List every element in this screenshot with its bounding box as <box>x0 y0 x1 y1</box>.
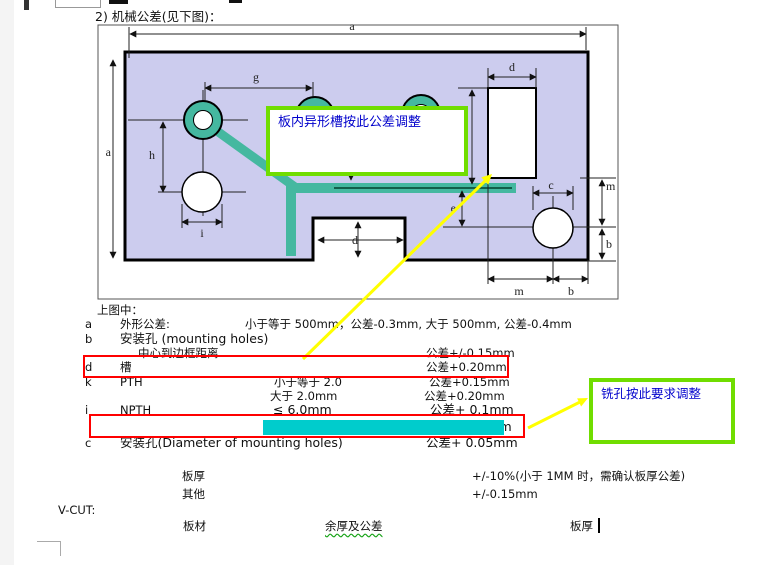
legend-row[interactable]: k PTH 小于等于 2.0 公差+0.15mm <box>0 375 772 389</box>
legend-row[interactable]: d 槽 公差+0.20mm <box>0 360 772 374</box>
legend-row[interactable]: a 外形公差: 小于等于 500mm，公差-0.3mm, 大于 500mm, 公… <box>0 317 772 331</box>
legend-label: 安装孔(Diameter of mounting holes) <box>120 436 343 450</box>
routed-slot[interactable] <box>488 88 536 178</box>
legend-key: b <box>85 332 92 346</box>
diagram-canvas[interactable] <box>98 25 618 299</box>
legend-value: 公差+ 0.05mm <box>426 436 518 450</box>
clipped-content-fragment <box>24 0 29 10</box>
pcb-board-shape[interactable] <box>125 52 588 260</box>
legend-label: 中心到边框距离 <box>138 346 219 360</box>
thickness-value: +/-10%(小于 1MM 时，需确认板厚公差) <box>472 469 685 483</box>
legend-row[interactable]: i NPTH ≤ 6.0mm 公差+ 0.1mm <box>0 403 772 417</box>
vcut-col-thickness: 板厚 <box>570 519 593 533</box>
vcut-label[interactable]: V-CUT: <box>58 503 95 517</box>
legend-value: 公差+/-0.15mm <box>426 346 515 360</box>
dimension-lines <box>113 27 616 284</box>
legend-value: 公差+0.20mm <box>426 360 507 374</box>
legend-row[interactable]: b 安装孔 (mounting holes) <box>0 332 772 346</box>
legend-key: k <box>85 375 92 389</box>
vcut-col-material: 板材 <box>183 519 206 533</box>
odd-shaped-slot[interactable] <box>210 126 516 256</box>
legend-label: PTH <box>120 375 143 389</box>
legend-cond: 小于等于 2.0 <box>274 375 342 389</box>
legend-key: a <box>85 317 92 331</box>
margin-corner-mark <box>60 541 61 556</box>
legend-intro[interactable]: 上图中： <box>97 303 143 317</box>
vcut-col-remaining: 余厚及公差 <box>325 519 383 533</box>
clipped-content-fragment <box>229 0 242 3</box>
legend-value: 公差+ 0.1mm <box>430 403 514 417</box>
dim-label-d-slot: d <box>509 60 515 74</box>
mounting-hole[interactable] <box>533 208 573 248</box>
dim-label-m-bottom: m <box>514 284 524 298</box>
thickness-row[interactable]: 其他 +/-0.15mm <box>0 487 772 501</box>
callout-slot-text: 板内异形槽按此公差调整 <box>278 114 421 130</box>
legend-label: NPTH <box>120 403 151 417</box>
legend-row[interactable]: 大于 2.0mm 公差+0.20mm <box>0 389 772 403</box>
legend-key: i <box>85 403 88 417</box>
dim-label-d-notch: d <box>352 233 358 247</box>
legend-cond: ≤ 6.0mm <box>273 403 332 417</box>
legend-label: 槽 <box>120 360 132 374</box>
dim-label-e: e <box>451 201 456 215</box>
dim-label-g: g <box>253 70 259 84</box>
npth-hole[interactable] <box>182 172 222 212</box>
legend-label: 外形公差: <box>120 317 170 331</box>
dim-label-m-right: m <box>606 179 616 193</box>
legend-key: d <box>85 360 92 374</box>
thickness-label: 板厚 <box>182 469 205 483</box>
margin-corner-mark <box>37 541 61 542</box>
cyan-highlight <box>263 420 504 435</box>
vcut-header-row[interactable]: 板材 余厚及公差 板厚 <box>0 519 772 533</box>
text-cursor <box>598 518 600 533</box>
notch-dimension <box>318 222 403 257</box>
legend-row[interactable]: c 安装孔(Diameter of mounting holes) 公差+ 0.… <box>0 436 772 450</box>
dim-label-i: i <box>200 226 204 240</box>
legend-row[interactable]: 中心到边框距离 公差+/-0.15mm <box>0 346 772 360</box>
dim-label-b-bottom: b <box>568 284 574 298</box>
thickness-value: +/-0.15mm <box>472 487 538 501</box>
dim-label-c: c <box>548 178 553 192</box>
legend-cond: 大于 2.0mm <box>270 389 337 403</box>
callout-slot-box[interactable]: 板内异形槽按此公差调整 <box>268 108 466 174</box>
legend-value: 公差+0.20mm <box>424 389 505 403</box>
thickness-row[interactable]: 板厚 +/-10%(小于 1MM 时，需确认板厚公差) <box>0 469 772 483</box>
legend-value: 公差+0.15mm <box>429 375 510 389</box>
legend-label: 安装孔 (mounting holes) <box>120 332 268 346</box>
dim-label-h: h <box>149 148 155 162</box>
clipped-content-fragment <box>109 0 128 4</box>
section-heading[interactable]: 2) 机械公差(见下图)： <box>95 6 222 25</box>
dim-label-a-top: a <box>349 19 355 33</box>
dim-label-b-right: b <box>606 237 612 251</box>
dim-label-a-left: a <box>106 145 112 159</box>
thickness-label: 其他 <box>182 487 205 501</box>
legend-key: c <box>85 436 91 450</box>
legend-cond: 小于等于 500mm，公差-0.3mm, 大于 500mm, 公差-0.4mm <box>245 317 572 331</box>
pth-hole[interactable] <box>184 95 440 139</box>
